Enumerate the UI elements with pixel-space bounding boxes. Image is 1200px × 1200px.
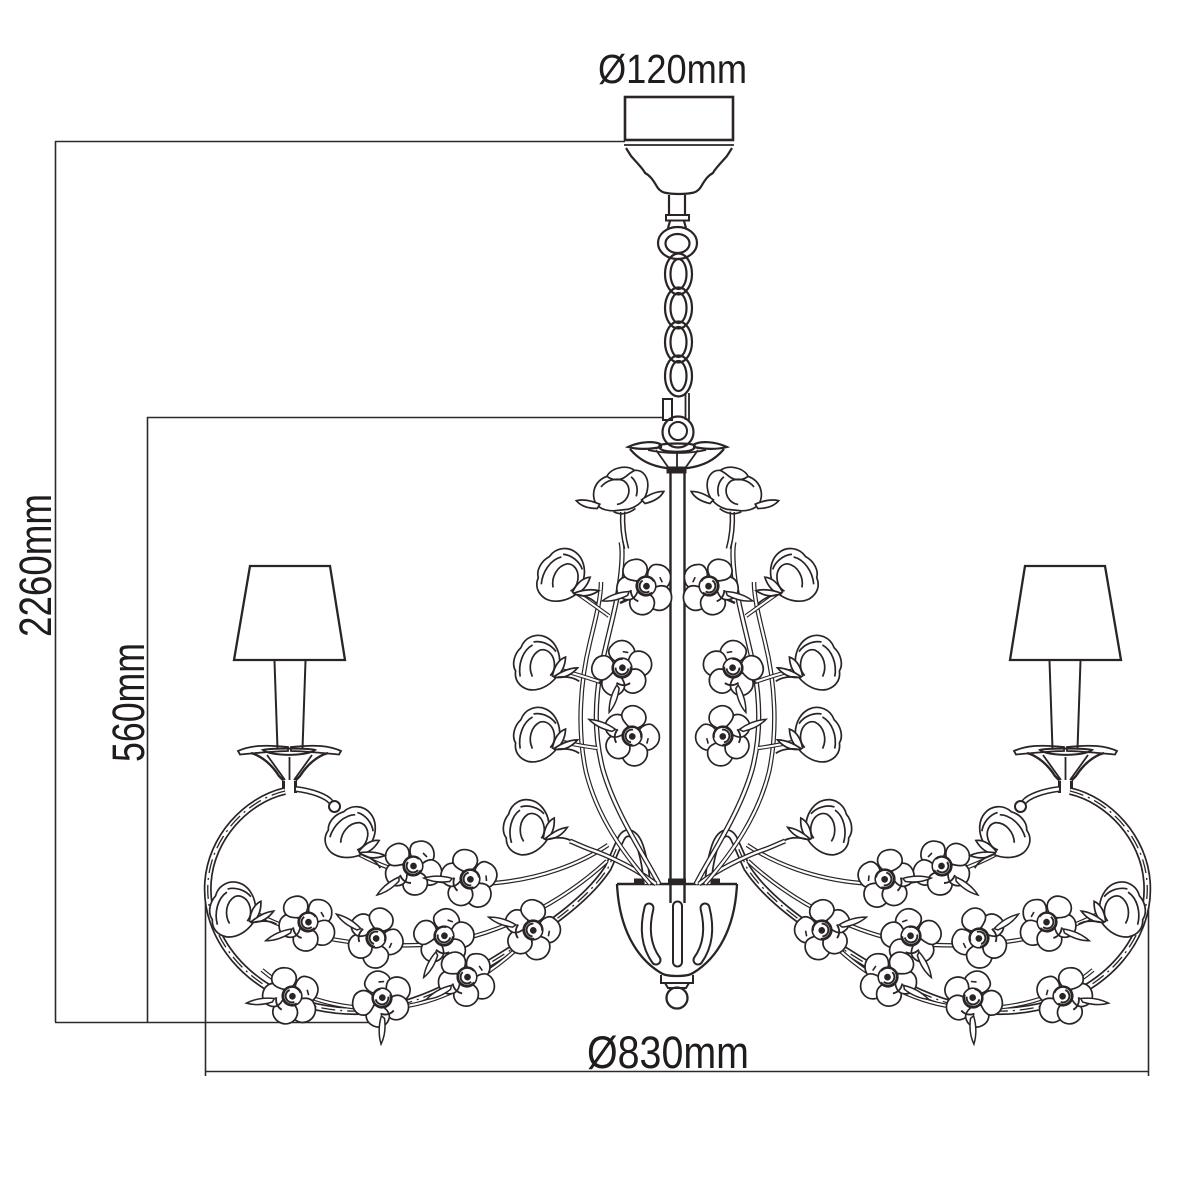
svg-text:2260mm: 2260mm (10, 494, 61, 637)
svg-text:Ø120mm: Ø120mm (598, 46, 747, 92)
svg-text:560mm: 560mm (103, 643, 154, 762)
svg-text:Ø830mm: Ø830mm (587, 1027, 749, 1078)
